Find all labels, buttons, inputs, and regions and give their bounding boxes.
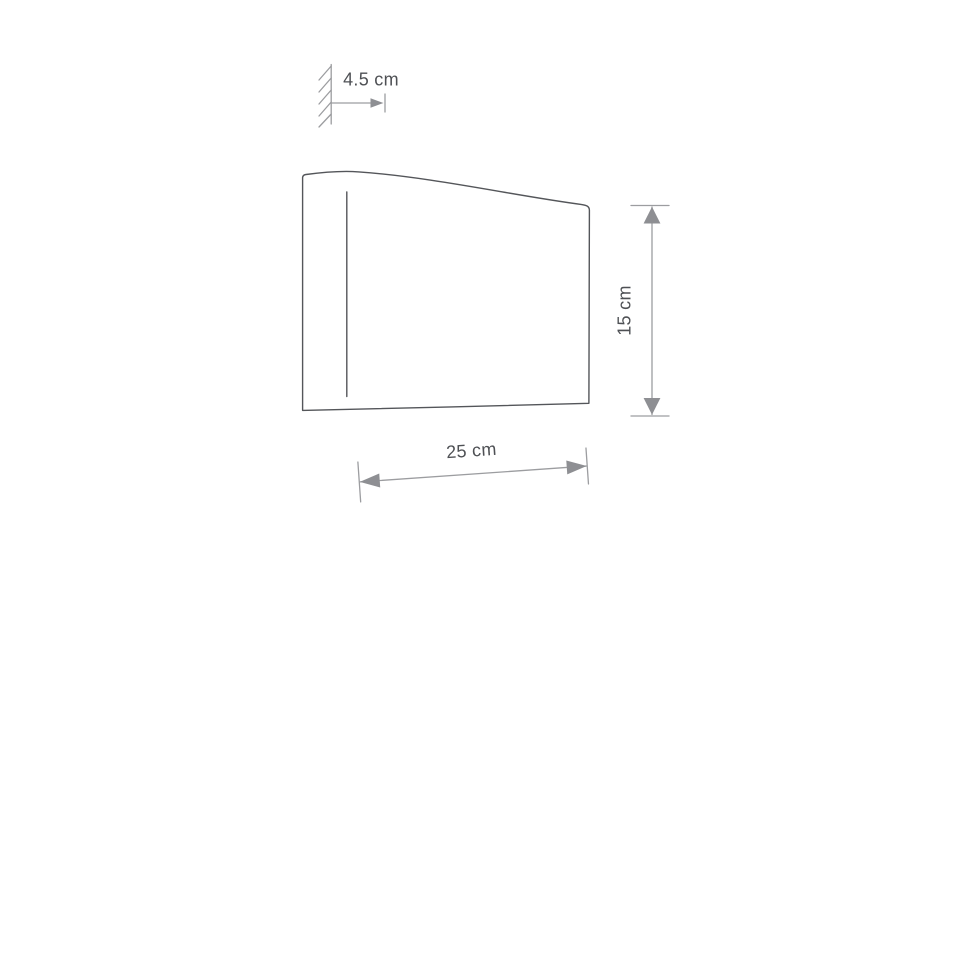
height-dimension: 15 cm: [615, 206, 670, 417]
up-arrowhead-icon: [644, 207, 661, 224]
lamp-body-outline: [303, 172, 590, 411]
wall-mount-symbol: [319, 65, 331, 128]
depth-dimension: 4.5 cm: [331, 70, 399, 113]
left-arrowhead-icon: [359, 474, 380, 489]
wall-hatch-line: [319, 66, 331, 80]
wall-hatch-line: [319, 102, 331, 116]
width-dimension-label: 25 cm: [445, 439, 497, 462]
wall-hatch-line: [319, 90, 331, 104]
width-dimension-line: [360, 466, 586, 482]
dimension-drawing-svg: 4.5 cm 15 cm 25 cm: [0, 0, 970, 970]
right-arrowhead-icon: [566, 459, 587, 474]
depth-dimension-label: 4.5 cm: [343, 70, 399, 90]
width-dimension: 25 cm: [357, 433, 589, 502]
wall-hatch-line: [319, 78, 331, 92]
down-arrowhead-icon: [644, 398, 661, 415]
lamp-body: [303, 172, 590, 411]
product-dimension-diagram: 4.5 cm 15 cm 25 cm: [0, 0, 970, 970]
right-arrowhead-icon: [371, 98, 384, 108]
wall-hatch-line: [319, 114, 331, 127]
height-dimension-label: 15 cm: [615, 285, 635, 336]
